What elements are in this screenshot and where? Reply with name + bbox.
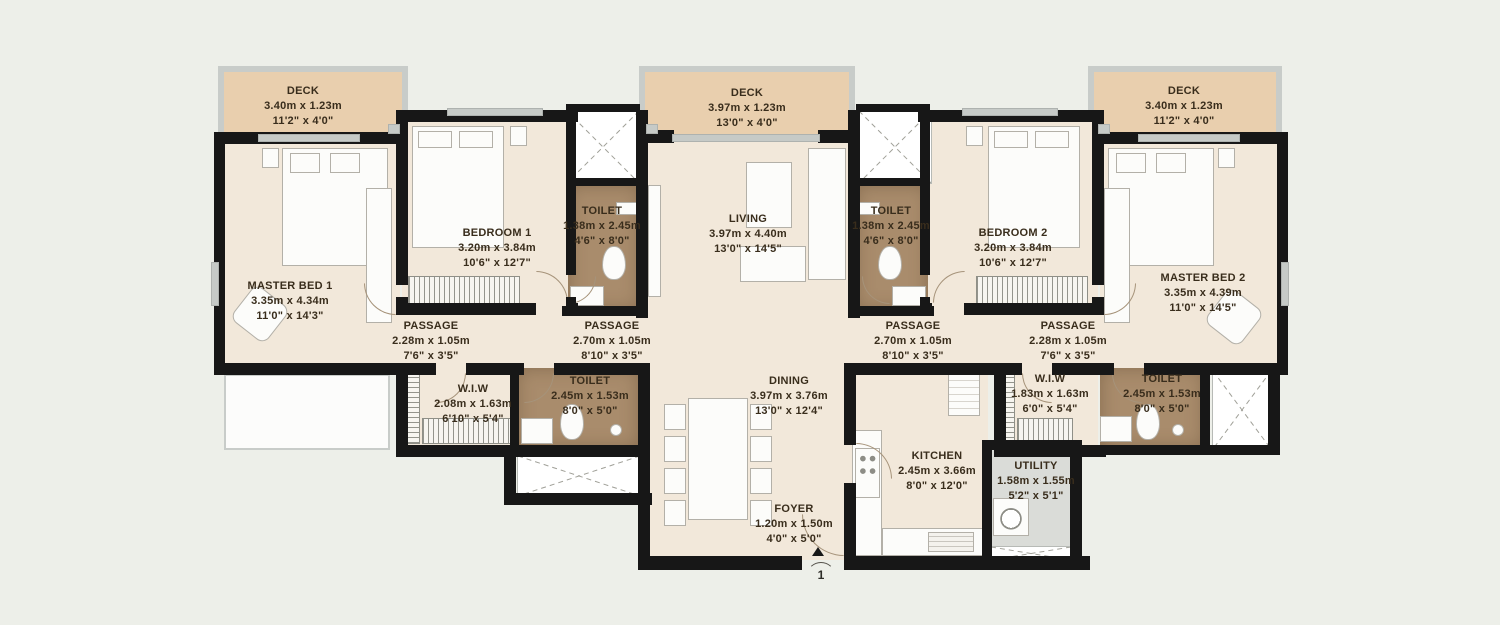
fridge-icon — [948, 374, 980, 416]
door-step — [646, 124, 658, 134]
dining-chair-icon — [750, 468, 772, 494]
wall-segment — [982, 440, 992, 570]
room-dim-imperial: 4'6" x 8'0" — [563, 234, 641, 249]
room-name: PASSAGE — [573, 319, 651, 334]
pillow-icon — [330, 153, 360, 173]
entry-number: 1 — [818, 568, 825, 582]
shower-icon — [1172, 424, 1184, 436]
wall-segment — [568, 303, 578, 315]
room-label-passage-3: PASSAGE 2.70m x 1.05m 8'10" x 3'5" — [874, 319, 952, 364]
room-dim-imperial: 6'0" x 5'4" — [1011, 402, 1089, 417]
wardrobe-icon — [408, 276, 520, 304]
room-dim-imperial: 10'6" x 12'7" — [974, 256, 1052, 271]
room-dim-metric: 3.40m x 1.23m — [264, 99, 342, 114]
room-name: TOILET — [563, 204, 641, 219]
pillow-icon — [994, 131, 1028, 148]
room-name: PASSAGE — [392, 319, 470, 334]
room-name: TOILET — [1123, 372, 1201, 387]
room-name: DINING — [750, 374, 828, 389]
room-dim-imperial: 13'0" x 14'5" — [709, 242, 787, 257]
room-dim-metric: 1.58m x 1.55m — [997, 474, 1075, 489]
entry-arrow-icon — [812, 547, 824, 556]
room-dim-imperial: 11'2" x 4'0" — [264, 114, 342, 129]
nightstand-icon — [510, 126, 527, 146]
room-name: DECK — [708, 86, 786, 101]
room-dim-metric: 2.45m x 3.66m — [898, 464, 976, 479]
wall-segment — [566, 104, 640, 112]
room-dim-metric: 2.70m x 1.05m — [573, 334, 651, 349]
room-dim-imperial: 5'2" x 5'1" — [997, 489, 1075, 504]
room-label-kitchen: KITCHEN 2.45m x 3.66m 8'0" x 12'0" — [898, 449, 976, 494]
room-dim-metric: 3.97m x 3.76m — [750, 389, 828, 404]
ledge — [224, 374, 390, 450]
room-label-deck-center: DECK 3.97m x 1.23m 13'0" x 4'0" — [708, 86, 786, 131]
wall-segment — [396, 303, 536, 315]
room-name: KITCHEN — [898, 449, 976, 464]
dining-table-icon — [688, 398, 748, 520]
room-label-living: LIVING 3.97m x 4.40m 13'0" x 14'5" — [709, 212, 787, 257]
room-name: DECK — [264, 84, 342, 99]
room-label-master-bed-1: MASTER BED 1 3.35m x 4.34m 11'0" x 14'3" — [248, 279, 333, 324]
door-step — [388, 124, 400, 134]
room-dim-imperial: 11'0" x 14'5" — [1161, 301, 1246, 316]
room-label-master-bed-2: MASTER BED 2 3.35m x 4.39m 11'0" x 14'5" — [1161, 271, 1246, 316]
room-dim-metric: 1.83m x 1.63m — [1011, 387, 1089, 402]
room-dim-metric: 2.28m x 1.05m — [392, 334, 470, 349]
room-dim-imperial: 8'10" x 3'5" — [874, 349, 952, 364]
room-label-toilet-4: TOILET 2.45m x 1.53m 8'0" x 5'0" — [1123, 372, 1201, 417]
wall-segment — [844, 363, 856, 445]
window-sill — [211, 262, 219, 306]
wall-segment — [638, 363, 650, 568]
wall-segment — [214, 132, 225, 375]
pillow-icon — [459, 131, 493, 148]
dining-chair-icon — [750, 436, 772, 462]
room-dim-metric: 3.97m x 4.40m — [709, 227, 787, 242]
wall-segment — [994, 445, 1106, 457]
room-dim-imperial: 11'2" x 4'0" — [1145, 114, 1223, 129]
room-dim-metric: 3.97m x 1.23m — [708, 101, 786, 116]
wardrobe-icon — [976, 276, 1088, 304]
wall-segment — [1277, 132, 1288, 375]
deck-slider-sill — [672, 134, 820, 142]
dining-chair-icon — [664, 404, 686, 430]
wall-segment — [1092, 445, 1214, 455]
nightstand-icon — [966, 126, 983, 146]
room-dim-metric: 2.45m x 1.53m — [551, 389, 629, 404]
room-name: BEDROOM 2 — [974, 226, 1052, 241]
room-name: DECK — [1145, 84, 1223, 99]
room-dim-metric: 3.20m x 3.84m — [458, 241, 536, 256]
entry-door-marker: 1 — [807, 562, 835, 588]
wall-segment — [214, 363, 404, 375]
room-label-dining: DINING 3.97m x 3.76m 13'0" x 12'4" — [750, 374, 828, 419]
wall-segment — [396, 363, 408, 457]
room-label-bedroom-1: BEDROOM 1 3.20m x 3.84m 10'6" x 12'7" — [458, 226, 536, 271]
room-dim-metric: 1.20m x 1.50m — [755, 517, 833, 532]
window-sill — [962, 108, 1058, 116]
room-dim-metric: 1.38m x 2.45m — [852, 219, 930, 234]
room-dim-imperial: 7'6" x 3'5" — [392, 349, 470, 364]
room-dim-imperial: 8'10" x 3'5" — [573, 349, 651, 364]
room-label-utility: UTILITY 1.58m x 1.55m 5'2" x 5'1" — [997, 459, 1075, 504]
pillow-icon — [1035, 131, 1069, 148]
room-dim-metric: 2.28m x 1.05m — [1029, 334, 1107, 349]
room-name: UTILITY — [997, 459, 1075, 474]
dining-chair-icon — [664, 468, 686, 494]
room-label-bedroom-2: BEDROOM 2 3.20m x 3.84m 10'6" x 12'7" — [974, 226, 1052, 271]
wall-segment — [920, 110, 930, 275]
room-label-wiw-2: W.I.W 1.83m x 1.63m 6'0" x 5'4" — [1011, 372, 1089, 417]
wall-segment — [994, 363, 1006, 457]
room-label-deck-right: DECK 3.40m x 1.23m 11'2" x 4'0" — [1145, 84, 1223, 129]
room-dim-metric: 1.38m x 2.45m — [563, 219, 641, 234]
window-sill — [1281, 262, 1289, 306]
nightstand-icon — [262, 148, 279, 168]
wall-segment — [1200, 368, 1210, 448]
room-dim-metric: 2.08m x 1.63m — [434, 397, 512, 412]
door-step — [1098, 124, 1110, 134]
wall-segment — [844, 556, 1090, 570]
wall-segment — [856, 104, 930, 112]
deck-door-sill — [258, 134, 360, 142]
wall-segment — [856, 178, 930, 186]
vanity-icon — [521, 418, 553, 444]
toilet-wc-icon — [878, 246, 902, 280]
room-name: FOYER — [755, 502, 833, 517]
room-dim-imperial: 8'0" x 5'0" — [551, 404, 629, 419]
room-dim-metric: 2.45m x 1.53m — [1123, 387, 1201, 402]
room-dim-imperial: 4'6" x 8'0" — [852, 234, 930, 249]
room-dim-imperial: 4'0" x 5'0" — [755, 532, 833, 547]
room-dim-imperial: 8'0" x 12'0" — [898, 479, 976, 494]
wall-segment — [1200, 445, 1280, 455]
pillow-icon — [1156, 153, 1186, 173]
wall-segment — [920, 303, 932, 315]
room-name: W.I.W — [434, 382, 512, 397]
shaft-duct — [1212, 370, 1272, 450]
deck-door-sill — [1138, 134, 1240, 142]
room-label-passage-1: PASSAGE 2.28m x 1.05m 7'6" x 3'5" — [392, 319, 470, 364]
room-dim-imperial: 6'10" x 5'4" — [434, 412, 512, 427]
window-sill — [447, 108, 543, 116]
wall-segment — [1268, 363, 1280, 455]
room-name: PASSAGE — [1029, 319, 1107, 334]
room-label-deck-left: DECK 3.40m x 1.23m 11'2" x 4'0" — [264, 84, 342, 129]
room-dim-metric: 3.40m x 1.23m — [1145, 99, 1223, 114]
wall-segment — [396, 445, 650, 457]
shower-icon — [610, 424, 622, 436]
room-dim-imperial: 8'0" x 5'0" — [1123, 402, 1201, 417]
pillow-icon — [290, 153, 320, 173]
room-label-foyer: FOYER 1.20m x 1.50m 4'0" x 5'0" — [755, 502, 833, 547]
wall-segment — [964, 303, 1104, 315]
shaft-duct — [517, 455, 641, 497]
room-name: MASTER BED 1 — [248, 279, 333, 294]
pillow-icon — [1116, 153, 1146, 173]
dining-chair-icon — [664, 500, 686, 526]
room-name: TOILET — [551, 374, 629, 389]
room-dim-metric: 3.20m x 3.84m — [974, 241, 1052, 256]
room-name: TOILET — [852, 204, 930, 219]
pillow-icon — [418, 131, 452, 148]
room-dim-imperial: 13'0" x 4'0" — [708, 116, 786, 131]
room-label-passage-2: PASSAGE 2.70m x 1.05m 8'10" x 3'5" — [573, 319, 651, 364]
room-label-passage-4: PASSAGE 2.28m x 1.05m 7'6" x 3'5" — [1029, 319, 1107, 364]
toilet-wc-icon — [602, 246, 626, 280]
nightstand-icon — [1218, 148, 1235, 168]
room-dim-imperial: 13'0" x 12'4" — [750, 404, 828, 419]
room-name: W.I.W — [1011, 372, 1089, 387]
dining-chair-icon — [664, 436, 686, 462]
wall-segment — [566, 110, 576, 275]
wall-segment — [566, 178, 640, 186]
sofa-icon — [808, 148, 846, 280]
room-label-toilet-2: TOILET 1.38m x 2.45m 4'6" x 8'0" — [852, 204, 930, 249]
room-dim-metric: 2.70m x 1.05m — [874, 334, 952, 349]
wall-segment — [844, 483, 856, 570]
wall-segment — [1096, 363, 1114, 375]
wall-segment — [844, 363, 994, 375]
room-label-toilet-3: TOILET 2.45m x 1.53m 8'0" x 5'0" — [551, 374, 629, 419]
room-label-wiw-1: W.I.W 2.08m x 1.63m 6'10" x 5'4" — [434, 382, 512, 427]
room-dim-imperial: 10'6" x 12'7" — [458, 256, 536, 271]
vanity-icon — [1100, 416, 1132, 442]
room-label-toilet-1: TOILET 1.38m x 2.45m 4'6" x 8'0" — [563, 204, 641, 249]
tv-console-icon — [648, 185, 661, 297]
room-name: PASSAGE — [874, 319, 952, 334]
room-name: BEDROOM 1 — [458, 226, 536, 241]
room-dim-metric: 3.35m x 4.39m — [1161, 286, 1246, 301]
room-dim-imperial: 11'0" x 14'3" — [248, 309, 333, 324]
room-name: MASTER BED 2 — [1161, 271, 1246, 286]
wall-segment — [396, 110, 408, 285]
wall-segment — [504, 493, 652, 505]
room-dim-imperial: 7'6" x 3'5" — [1029, 349, 1107, 364]
room-name: LIVING — [709, 212, 787, 227]
floor-plan: DECK 3.40m x 1.23m 11'2" x 4'0" DECK 3.9… — [0, 0, 1500, 625]
sink-icon — [928, 532, 974, 552]
room-dim-metric: 3.35m x 4.34m — [248, 294, 333, 309]
wall-segment — [638, 556, 802, 570]
